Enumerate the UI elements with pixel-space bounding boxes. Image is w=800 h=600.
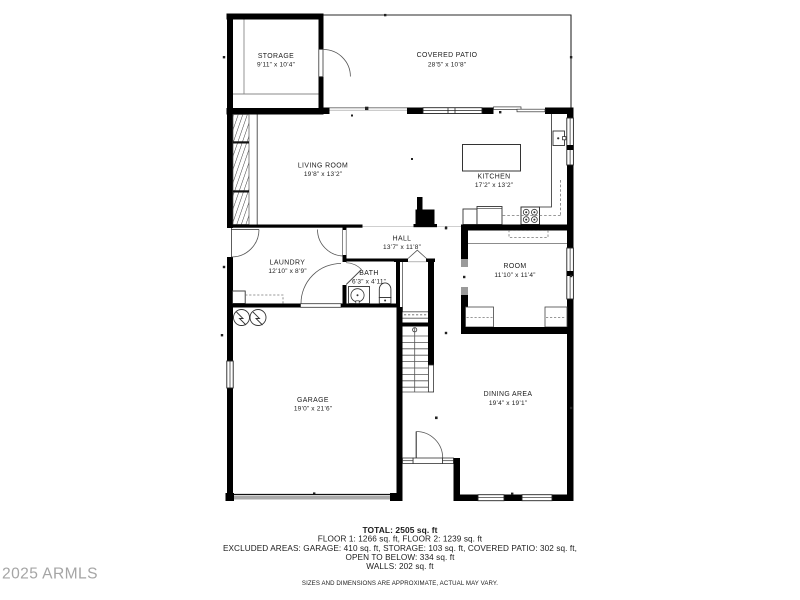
svg-text:11’10” x 11’4”: 11’10” x 11’4”	[494, 272, 535, 279]
svg-text:DINING AREA: DINING AREA	[484, 391, 533, 398]
svg-text:17’2” x 13’2”: 17’2” x 13’2”	[475, 182, 513, 189]
svg-text:SIZES AND DIMENSIONS ARE APPRO: SIZES AND DIMENSIONS ARE APPROXIMATE, AC…	[302, 580, 498, 587]
svg-text:9’11” x 10’4”: 9’11” x 10’4”	[257, 61, 295, 68]
svg-text:EXCLUDED AREAS: GARAGE: 410 sq: EXCLUDED AREAS: GARAGE: 410 sq. ft, STOR…	[223, 544, 577, 553]
svg-text:19’8” x 13’2”: 19’8” x 13’2”	[304, 171, 342, 178]
svg-text:STORAGE: STORAGE	[258, 53, 294, 60]
svg-text:FLOOR 1: 1266 sq. ft, FLOOR 2:: FLOOR 1: 1266 sq. ft, FLOOR 2: 1239 sq. …	[318, 535, 483, 544]
svg-text:COVERED PATIO: COVERED PATIO	[417, 52, 478, 59]
svg-text:HALL: HALL	[393, 235, 412, 242]
svg-text:OPEN TO BELOW: 334 sq. ft: OPEN TO BELOW: 334 sq. ft	[346, 553, 456, 562]
svg-text:19’0” x 21’6”: 19’0” x 21’6”	[294, 405, 332, 412]
svg-text:KITCHEN: KITCHEN	[477, 173, 510, 180]
svg-text:2025 ARMLS: 2025 ARMLS	[2, 566, 98, 583]
svg-text:ROOM: ROOM	[503, 263, 526, 270]
svg-text:12’10” x 8’9”: 12’10” x 8’9”	[268, 268, 306, 275]
svg-text:LIVING ROOM: LIVING ROOM	[298, 162, 348, 169]
svg-text:LAUNDRY: LAUNDRY	[270, 259, 306, 266]
svg-text:28’5” x 10’8”: 28’5” x 10’8”	[428, 61, 466, 68]
svg-text:WALLS: 202 sq. ft: WALLS: 202 sq. ft	[366, 562, 434, 571]
svg-text:BATH: BATH	[359, 270, 378, 277]
svg-text:19’4” x 19’1”: 19’4” x 19’1”	[489, 400, 527, 407]
svg-text:GARAGE: GARAGE	[297, 397, 329, 404]
svg-text:13’7” x 11’8”: 13’7” x 11’8”	[383, 244, 421, 251]
